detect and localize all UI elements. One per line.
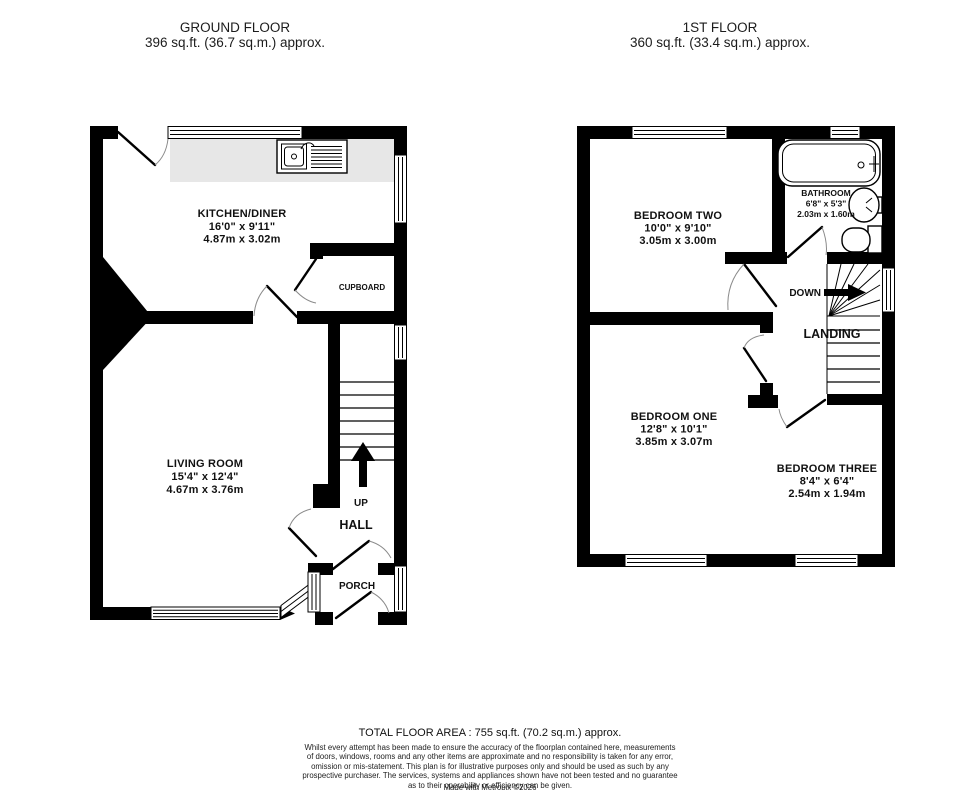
disclaimer-line: Whilst every attempt has been made to en… xyxy=(0,743,980,752)
window xyxy=(395,325,407,360)
disclaimer-line: omission or mis-statement. This plan is … xyxy=(0,762,980,771)
window xyxy=(632,127,727,139)
kitchen-label: KITCHEN/DINER xyxy=(198,208,287,220)
total-floor-area: TOTAL FLOOR AREA : 755 sq.ft. (70.2 sq.m… xyxy=(0,727,980,739)
window xyxy=(395,155,407,223)
window xyxy=(883,268,895,312)
bedroom-two-dims-imperial: 10'0" x 9'10" xyxy=(644,223,711,235)
bathroom-dims-metric: 2.03m x 1.60m xyxy=(797,209,855,219)
living-room-dims-metric: 4.67m x 3.76m xyxy=(166,484,243,496)
bathroom-label: BATHROOM xyxy=(801,188,850,198)
down-arrow-icon xyxy=(824,284,866,301)
ground-floor-plan: KITCHEN/DINER 16'0" x 9'11" 4.87m x 3.02… xyxy=(90,126,407,625)
window xyxy=(308,572,320,612)
window xyxy=(151,607,280,620)
ground-floor-windows xyxy=(151,127,407,620)
window xyxy=(281,585,309,618)
door-swing xyxy=(118,132,168,165)
bedroom-three-dims-imperial: 8'4" x 6'4" xyxy=(800,476,855,488)
chimney-breast xyxy=(103,257,152,370)
first-floor-plan: BEDROOM TWO 10'0" x 9'10" 3.05m x 3.00m … xyxy=(577,126,895,567)
down-label: DOWN xyxy=(789,288,821,299)
up-label: UP xyxy=(354,498,368,509)
bedroom-two-label: BEDROOM TWO xyxy=(634,210,723,222)
cupboard-label: CUPBOARD xyxy=(339,283,385,292)
disclaimer-line: prospective purchaser. The services, sys… xyxy=(0,771,980,780)
door-swing xyxy=(744,335,766,381)
living-room-dims-imperial: 15'4" x 12'4" xyxy=(171,471,238,483)
floorplan-page: GROUND FLOOR 396 sq.ft. (36.7 sq.m.) app… xyxy=(0,0,980,790)
bedroom-one-label: BEDROOM ONE xyxy=(631,411,718,423)
door-swing xyxy=(728,264,776,310)
bedroom-two-dims-metric: 3.05m x 3.00m xyxy=(639,235,716,247)
ground-floor-walls xyxy=(90,126,407,625)
window xyxy=(168,127,302,139)
up-arrow-icon xyxy=(351,442,375,487)
bathroom-dims-imperial: 6'8" x 5'3" xyxy=(806,199,846,209)
hall-label: HALL xyxy=(339,518,373,532)
credit-line: Made with Metropix ©2026 xyxy=(0,783,980,790)
door-swing xyxy=(289,509,316,556)
landing-label: LANDING xyxy=(804,327,861,341)
toilet-icon xyxy=(842,226,882,253)
floorplan-canvas: KITCHEN/DINER 16'0" x 9'11" 4.87m x 3.02… xyxy=(0,0,980,790)
disclaimer-line: of doors, windows, rooms and any other i… xyxy=(0,752,980,761)
window xyxy=(395,566,407,612)
porch-label: PORCH xyxy=(339,581,375,592)
door-swing xyxy=(788,227,827,257)
door-swing xyxy=(779,400,825,427)
bedroom-three-label: BEDROOM THREE xyxy=(777,463,877,475)
bathtub-icon xyxy=(778,140,880,186)
window xyxy=(625,555,707,567)
staircase-up xyxy=(340,382,394,487)
kitchen-dims-imperial: 16'0" x 9'11" xyxy=(209,221,276,233)
bedroom-one-dims-metric: 3.85m x 3.07m xyxy=(635,436,712,448)
door-swing xyxy=(295,259,316,303)
window xyxy=(830,127,860,139)
living-room-label: LIVING ROOM xyxy=(167,458,243,470)
window xyxy=(795,555,858,567)
bedroom-three-dims-metric: 2.54m x 1.94m xyxy=(788,488,865,500)
kitchen-sink-icon xyxy=(277,140,347,173)
kitchen-dims-metric: 4.87m x 3.02m xyxy=(203,234,280,246)
ground-floor-doors xyxy=(118,132,391,618)
bedroom-one-dims-imperial: 12'8" x 10'1" xyxy=(640,424,707,436)
door-swing xyxy=(254,286,297,317)
